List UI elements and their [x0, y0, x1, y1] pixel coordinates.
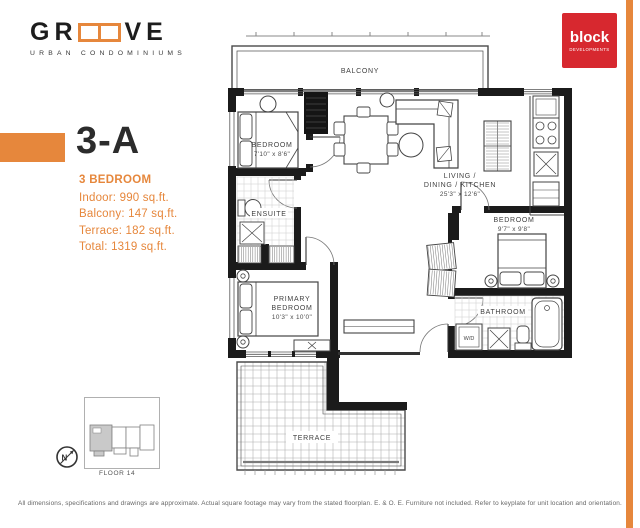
floor-label: FLOOR 14: [99, 470, 135, 477]
unit-name: 3-A: [76, 120, 140, 163]
right-accent-bar: [626, 0, 633, 528]
stat-indoor: Indoor: 990 sq.ft.: [79, 190, 177, 206]
primary-dims: 10'3" x 10'0": [272, 314, 312, 321]
living-label-2: DINING / KITCHEN: [424, 182, 496, 189]
logo-text-right: VE: [125, 20, 168, 45]
bedroom1-dims: 7'10" x 8'6": [254, 151, 290, 158]
north-label: N: [62, 454, 68, 463]
balcony-label: BALCONY: [341, 68, 379, 75]
north-arrow-icon: N: [54, 444, 80, 470]
primary-bedroom: PRIMARY BEDROOM 10'3" x 10'0": [237, 270, 330, 351]
bathroom: W/D BATHROOM: [455, 296, 564, 350]
bathroom-label: BATHROOM: [480, 309, 526, 316]
living-label-1: LIVING /: [444, 173, 476, 180]
stat-balcony: Balcony: 147 sq.ft.: [79, 206, 177, 222]
logo-text-left: GR: [30, 20, 78, 45]
bedroom-1: BEDROOM 7'10" x 8'6": [238, 96, 298, 168]
unit-accent-block: [0, 133, 65, 162]
floorplan-sheet: GR VE URBAN CONDOMINIUMS block DEVELOPME…: [0, 0, 640, 528]
terrace-label: TERRACE: [293, 435, 331, 442]
terrace: TERRACE: [237, 362, 405, 475]
bedroom-2: BEDROOM 9'7" x 9'8": [427, 217, 559, 297]
living-dining: LIVING / DINING / KITCHEN 25'3" x 12'6": [334, 93, 496, 333]
floorplan-drawing: BALCONY TERRACE: [215, 26, 585, 488]
ensuite-label: ENSUITE: [251, 211, 286, 218]
groove-logo: GR VE URBAN CONDOMINIUMS: [30, 20, 186, 57]
balcony: BALCONY: [232, 32, 490, 90]
keyplate: [84, 397, 160, 469]
unit-stats: Indoor: 990 sq.ft. Balcony: 147 sq.ft. T…: [79, 190, 177, 255]
washer-dryer-label: W/D: [464, 336, 475, 342]
bedroom1-label: BEDROOM: [251, 142, 292, 149]
logo-subtitle: URBAN CONDOMINIUMS: [30, 50, 186, 57]
primary-label-1: PRIMARY: [274, 296, 311, 303]
entry-closet: [304, 92, 328, 134]
primary-label-2: BEDROOM: [271, 305, 312, 312]
bedroom2-label: BEDROOM: [493, 217, 534, 224]
kitchen: [484, 96, 564, 215]
bedroom2-dims: 9'7" x 9'8": [498, 226, 530, 233]
stat-terrace: Terrace: 182 sq.ft.: [79, 223, 177, 239]
stat-total: Total: 1319 sq.ft.: [79, 239, 177, 255]
unit-type: 3 BEDROOM: [79, 174, 151, 186]
disclaimer-text: All dimensions, specifications and drawi…: [0, 500, 640, 507]
living-dims: 25'3" x 12'6": [440, 191, 480, 198]
logo-o-icon: [98, 23, 121, 42]
